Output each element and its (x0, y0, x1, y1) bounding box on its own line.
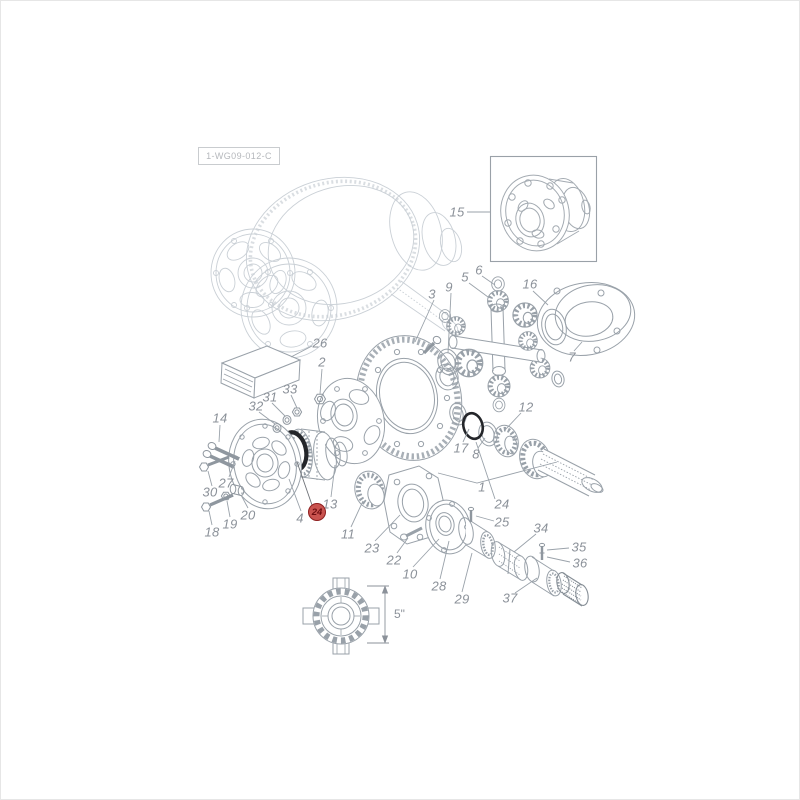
part-label-11: 11 (341, 527, 355, 542)
part-label-16: 16 (522, 277, 537, 292)
part-label-2: 2 (318, 355, 326, 370)
part-label-36: 36 (572, 556, 587, 571)
needle-bearing (555, 572, 589, 607)
part-label-25: 25 (494, 515, 509, 530)
drawing-number-box: 1-WG09-012-C (198, 147, 280, 165)
part-label-34: 34 (533, 521, 548, 536)
highlighted-part-badge-24: 24 (308, 503, 326, 521)
part-label-18: 18 (204, 525, 219, 540)
o-ring-on-pinion (460, 411, 485, 441)
part-label-30: 30 (202, 485, 217, 500)
part-label-1: 1 (478, 480, 486, 495)
part-label-20: 20 (240, 508, 255, 523)
part-label-37: 37 (502, 591, 517, 606)
part-label-12: 12 (518, 400, 533, 415)
part-label-19: 19 (222, 517, 237, 532)
part-label-31: 31 (262, 390, 277, 405)
part-label-22: 22 (386, 553, 401, 568)
diagram-line-art (1, 1, 800, 800)
part-label-29: 29 (454, 592, 469, 607)
part-label-28: 28 (431, 579, 446, 594)
part-label-9: 9 (445, 280, 453, 295)
carrier-housing (530, 275, 640, 388)
part-label-4: 4 (296, 511, 304, 526)
part-label-32: 32 (248, 399, 263, 414)
part-label-6: 6 (475, 263, 483, 278)
bearing-carrier-group (351, 466, 563, 597)
ghost-assembly (211, 156, 465, 358)
part-label-8: 8 (472, 447, 480, 462)
part-label-27: 27 (218, 476, 233, 491)
part-label-35: 35 (571, 540, 586, 555)
part-label-7: 7 (568, 350, 576, 365)
diff-case-half (222, 413, 309, 514)
part-label-14: 14 (212, 411, 227, 426)
part-label-17: 17 (453, 441, 468, 456)
part-label-24: 24 (494, 497, 509, 512)
part-label-5: 5 (461, 270, 469, 285)
parts-diagram-page: 1-WG09-012-C 15 3 9 5 6 16 7 26 2 33 31 … (0, 0, 800, 800)
part-label-26: 26 (312, 336, 327, 351)
part-label-3: 3 (428, 287, 436, 302)
part-label-33: 33 (282, 382, 297, 397)
dimension-label: 5" (394, 607, 405, 621)
part-label-23: 23 (364, 541, 379, 556)
part-label-15: 15 (449, 205, 464, 220)
part-label-10: 10 (402, 567, 417, 582)
inset-hub-drawing (493, 168, 594, 258)
dimension-annotation (367, 586, 389, 643)
